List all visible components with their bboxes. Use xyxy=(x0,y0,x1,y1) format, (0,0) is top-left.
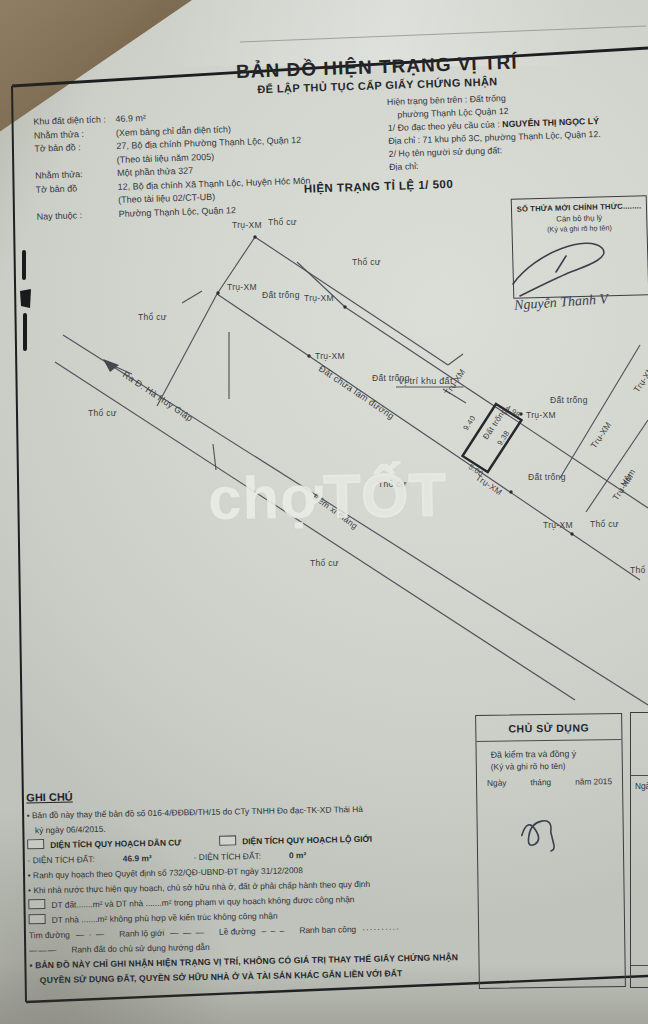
legend-symbol: – – – xyxy=(262,923,286,938)
map-label: Thổ cư xyxy=(310,558,339,568)
survey-post-dot xyxy=(343,305,346,308)
field-label: Tờ bản đồ : xyxy=(34,140,116,156)
checkbox-residential-planning xyxy=(27,839,44,849)
field-label: Tờ bản đồ xyxy=(35,180,117,196)
box-title: CHỦ SỬ DỤNG xyxy=(476,714,621,742)
legend-label: DIỆN TÍCH QUY HOẠCH LỘ GIỚI xyxy=(242,834,372,846)
legend-symbol: — · — xyxy=(76,927,105,943)
survey-post-dot xyxy=(216,291,219,294)
new-parcel-number-box: SỐ THỬA MỚI CHÍNH THỨC........ Cán bộ th… xyxy=(511,195,648,299)
legend-label: Tim đường xyxy=(29,928,70,944)
chotot-watermark: chợTỐT xyxy=(207,460,468,534)
checkbox-house-not-recognized xyxy=(29,914,46,924)
map-boundary-line xyxy=(255,237,448,365)
map-label: 9.40 xyxy=(461,414,477,432)
owner-signature xyxy=(507,800,608,861)
binder-mark xyxy=(20,289,31,308)
map-label: Trụ-XM xyxy=(232,220,262,230)
requester-name: NGUYỄN THỊ NGỌC LÝ xyxy=(502,116,599,129)
map-label: 5.00 xyxy=(467,462,485,478)
map-label: Thổ cư xyxy=(138,312,167,322)
box-divider xyxy=(631,775,648,776)
notes-section: GHI CHÚ • Bản đồ này thay thế bản đồ số … xyxy=(26,782,485,989)
survey-post-dot xyxy=(519,412,522,415)
map-label: Trụ-XM xyxy=(474,472,504,497)
map-label: Trụ-XM xyxy=(227,282,257,292)
legend-symbol: — — — xyxy=(170,925,205,941)
map-label: Trụ-XM xyxy=(526,410,556,420)
map-label: Hẻm xyxy=(618,467,637,488)
checkbox-land-not-recognized xyxy=(28,899,45,909)
map-label: Trụ-XM xyxy=(442,367,467,397)
map-label: Trụ-XM xyxy=(315,351,345,361)
date-label: tháng xyxy=(530,777,551,787)
parcel-info-right: Hiện trạng bên trên : Đất trống phường T… xyxy=(387,87,648,174)
map-label: Thổ cư xyxy=(268,217,297,227)
binder-mark xyxy=(23,313,27,351)
legend-symbol: ·········· xyxy=(362,921,400,937)
sign-instruction: (Ký và ghi rõ họ tên) xyxy=(491,760,622,772)
field-value: Phường Thạnh Lộc, Quận 12 xyxy=(118,204,236,221)
map-boundary-line xyxy=(586,420,648,512)
map-label: Trụ-XM xyxy=(588,420,613,450)
note-line: DT nhà .......m² không phù hợp về kiến t… xyxy=(52,911,278,925)
bullet-icon: ▪ xyxy=(29,960,32,970)
map-label: Thổ cư xyxy=(88,408,117,418)
map-boundary-line xyxy=(448,354,463,365)
subject-parcel-outline xyxy=(463,404,522,472)
legend-label: Ranh ban công xyxy=(299,922,356,938)
map-boundary-line xyxy=(217,294,309,356)
date-label: năm 2015 xyxy=(575,776,612,787)
area-value: 46.9 m² xyxy=(123,851,152,867)
map-label: Đất chừa làm đường xyxy=(317,363,396,421)
survey-post-dot xyxy=(509,490,512,493)
map-boundary-line xyxy=(297,262,345,307)
map-label: Trụ-XM xyxy=(610,472,635,502)
map-label: 4.98 xyxy=(504,403,522,419)
date-label: Ngày xyxy=(487,778,507,788)
map-label: Ra Đ. Hà Huy Giáp xyxy=(121,369,195,423)
document-photo: Thổ cưThổ cưThổ cưThổ cưThổ cưThổ cưThổ … xyxy=(0,0,648,1024)
survey-post-dot xyxy=(253,235,256,238)
map-boundary-line xyxy=(182,291,202,303)
map-boundary-line xyxy=(157,294,217,406)
survey-post-dot xyxy=(307,354,310,357)
land-user-box: CHỦ SỬ DỤNG Đã kiểm tra và đồng ý (Ký và… xyxy=(475,713,626,989)
legend-label: Lề đường xyxy=(219,924,256,940)
map-label: Đất trống xyxy=(262,290,300,300)
parcel-info-left: Khu đất diện tích :46.9 m² Nhằm thửa :(X… xyxy=(33,104,381,223)
checkbox-road-corridor-planning xyxy=(219,835,236,845)
direction-arrowhead-icon xyxy=(103,359,119,372)
box-divider xyxy=(631,965,648,966)
map-boundary-line xyxy=(217,237,255,294)
map-boundary-line xyxy=(107,363,132,374)
field-value: 46.9 m² xyxy=(115,112,146,127)
map-label: Vị trí khu đất xyxy=(398,376,453,386)
map-label: Đất trống xyxy=(550,395,588,405)
field-label: - DIỆN TÍCH ĐẤT: xyxy=(27,852,95,868)
map-label: Đất trống xyxy=(528,472,566,482)
survey-post-dot xyxy=(570,532,573,535)
map-label: Thổ cư xyxy=(630,565,648,575)
area-value: 0 m² xyxy=(289,848,307,863)
map-label: Trụ-XM xyxy=(631,364,648,394)
binder-mark xyxy=(22,250,26,280)
map-label: Trụ-XM xyxy=(304,293,334,303)
map-label: Thổ cư xyxy=(352,257,381,267)
legend-label: DIỆN TÍCH QUY HOẠCH DÂN CƯ xyxy=(50,837,181,850)
map-label: Đất trống xyxy=(481,407,508,442)
map-label: Đất trống xyxy=(372,373,410,383)
note-line: DT đất.......m² và DT nhà .......m² tron… xyxy=(51,894,354,910)
field-label: Nay thuộc : xyxy=(36,207,118,223)
field-label: - DIỆN TÍCH ĐẤT: xyxy=(194,849,262,865)
map-label: Trụ-XM xyxy=(543,520,573,530)
map-boundary-line xyxy=(443,389,466,403)
legend-label: Ranh lộ giới xyxy=(119,926,164,942)
map-boundary-line xyxy=(560,345,640,478)
legend-symbol: ——— xyxy=(29,943,57,959)
confirmation-text: Đã kiểm tra và đồng ý xyxy=(491,748,622,760)
map-label: Thổ cư xyxy=(590,519,619,529)
partial-text: Ngà xyxy=(635,781,648,791)
adjacent-box-partial: Ngà xyxy=(630,712,648,988)
map-label: 9.38 xyxy=(495,429,511,447)
